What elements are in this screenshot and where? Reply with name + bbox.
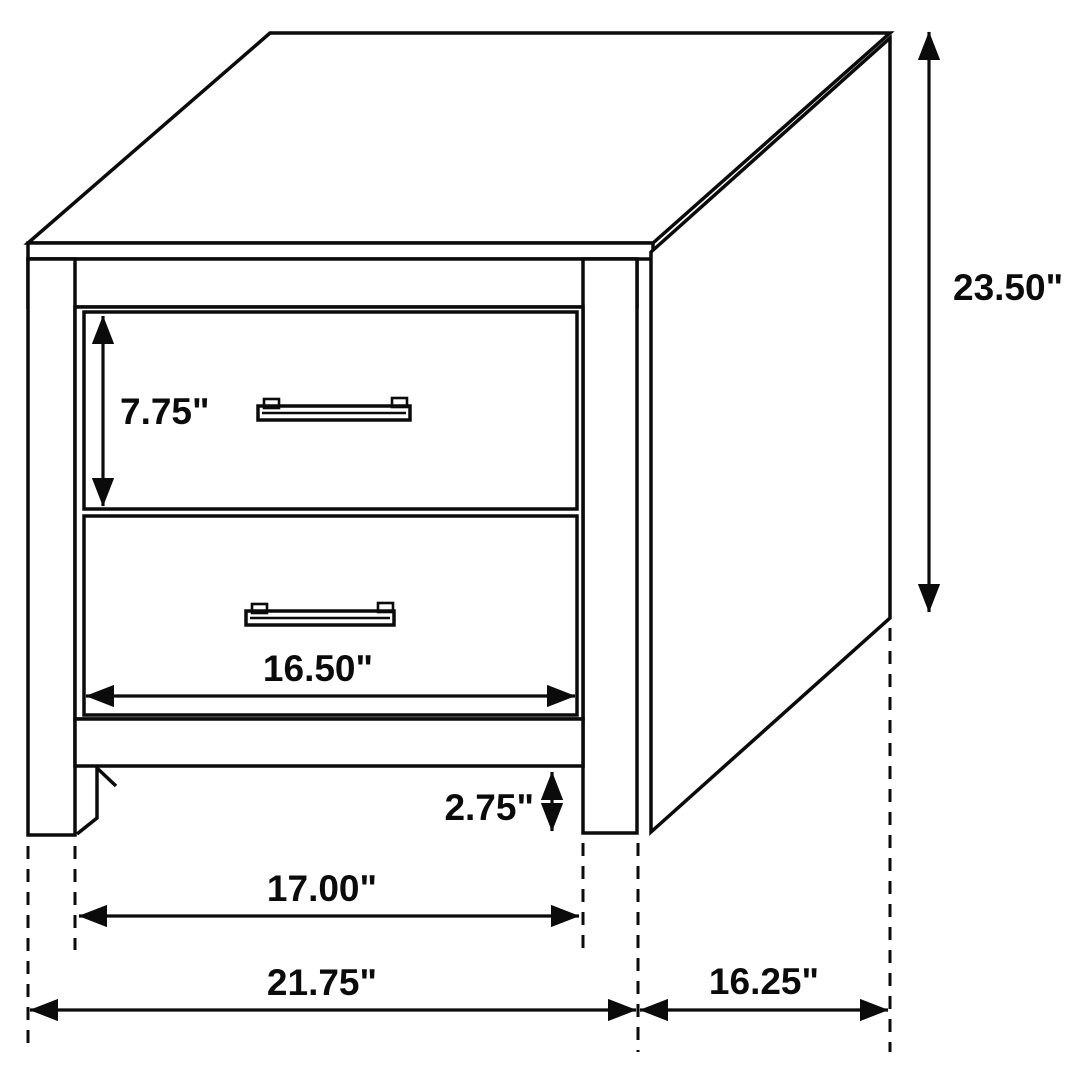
diagram-canvas: 23.50" 7.75" 16.50" 2.75" 17.00" 21.75" …	[0, 0, 1080, 1080]
side-depth-label: 16.25"	[709, 961, 819, 1002]
nightstand-dimension-diagram: 23.50" 7.75" 16.50" 2.75" 17.00" 21.75" …	[0, 0, 1080, 1080]
dimension-overall-height: 23.50"	[929, 32, 1063, 612]
dimension-inner-leg-span: 17.00"	[79, 868, 579, 916]
overall-width-label: 21.75"	[267, 962, 377, 1003]
drawer-height-label: 7.75"	[120, 391, 210, 432]
dimension-side-depth: 16.25"	[640, 961, 888, 1010]
dimension-overall-width: 21.75"	[30, 962, 636, 1010]
right-stile-leg	[583, 259, 637, 833]
nightstand-drawing	[28, 33, 890, 835]
foot-clearance-label: 2.75"	[444, 787, 534, 828]
drawer-face-width-label: 16.50"	[263, 648, 373, 689]
inner-leg-span-label: 17.00"	[267, 868, 377, 909]
overall-height-label: 23.50"	[953, 267, 1063, 308]
left-stile-leg	[28, 259, 75, 835]
bottom-rail	[75, 719, 583, 766]
tabletop-front-edge	[28, 243, 653, 259]
top-rail	[28, 259, 637, 307]
dimension-foot-clearance: 2.75"	[444, 772, 552, 831]
foot-detail	[77, 766, 116, 834]
